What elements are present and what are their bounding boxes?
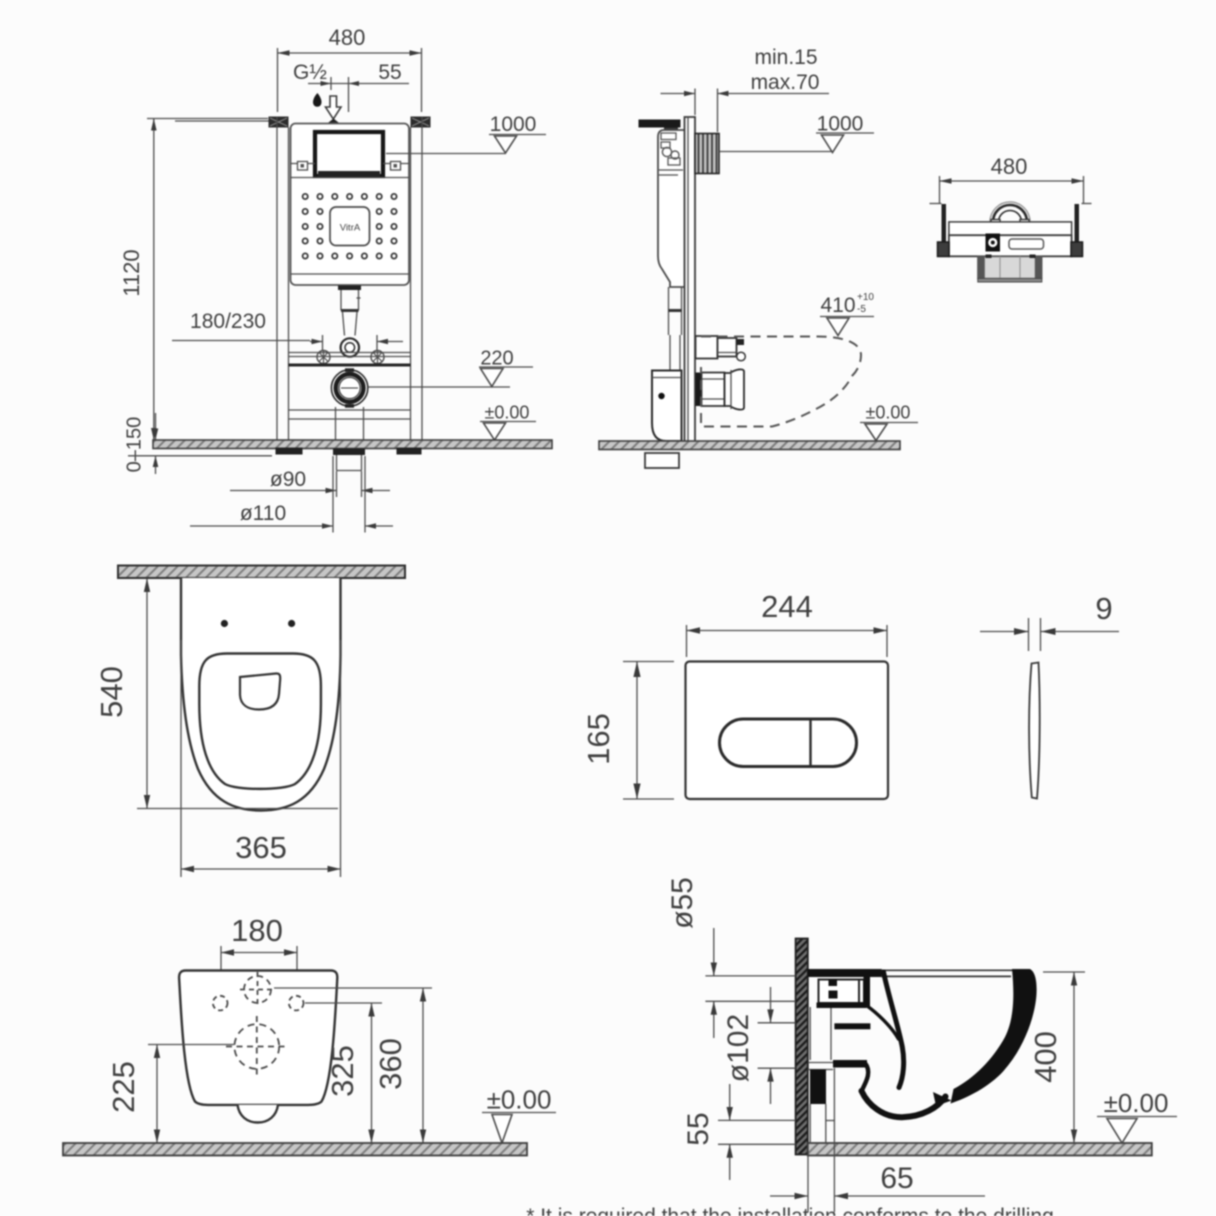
- svg-text:480: 480: [991, 154, 1028, 179]
- svg-text:225: 225: [106, 1061, 141, 1113]
- svg-text:±0.00: ±0.00: [485, 403, 530, 423]
- svg-text:180/230: 180/230: [190, 310, 266, 333]
- svg-text:410: 410: [820, 294, 855, 317]
- svg-text:244: 244: [761, 589, 813, 624]
- svg-text:325: 325: [325, 1045, 360, 1097]
- svg-text:ø102: ø102: [722, 1014, 755, 1082]
- svg-text:ø90: ø90: [270, 468, 306, 491]
- svg-text:ø55: ø55: [666, 877, 699, 929]
- svg-text:55: 55: [682, 1112, 715, 1145]
- svg-text:1120: 1120: [119, 249, 144, 296]
- svg-text:9: 9: [1095, 591, 1112, 626]
- svg-text:ø110: ø110: [240, 502, 286, 525]
- svg-text:VitrA: VitrA: [340, 223, 361, 234]
- svg-text:-5: -5: [857, 304, 866, 315]
- svg-text:±0.00: ±0.00: [487, 1085, 552, 1115]
- svg-text:180: 180: [231, 913, 283, 948]
- svg-text:* It is required that the inst: * It is required that the installation c…: [526, 1205, 1054, 1216]
- svg-text:165: 165: [581, 713, 616, 765]
- svg-text:±0.00: ±0.00: [1104, 1088, 1169, 1118]
- svg-text:0–150: 0–150: [124, 417, 146, 473]
- svg-text:540: 540: [94, 666, 129, 718]
- svg-text:1000: 1000: [490, 113, 537, 136]
- svg-text:360: 360: [373, 1038, 408, 1090]
- svg-text:220: 220: [480, 348, 513, 370]
- svg-text:65: 65: [880, 1162, 913, 1195]
- svg-text:±0.00: ±0.00: [866, 403, 911, 423]
- svg-text:G½: G½: [293, 61, 327, 84]
- svg-text:365: 365: [235, 830, 287, 865]
- svg-text:max.70: max.70: [751, 71, 820, 94]
- svg-text:55: 55: [378, 61, 401, 84]
- svg-text:480: 480: [329, 25, 366, 50]
- svg-text:+10: +10: [857, 292, 874, 303]
- svg-text:1000: 1000: [817, 113, 864, 136]
- svg-text:min.15: min.15: [754, 46, 817, 69]
- svg-text:400: 400: [1028, 1031, 1063, 1083]
